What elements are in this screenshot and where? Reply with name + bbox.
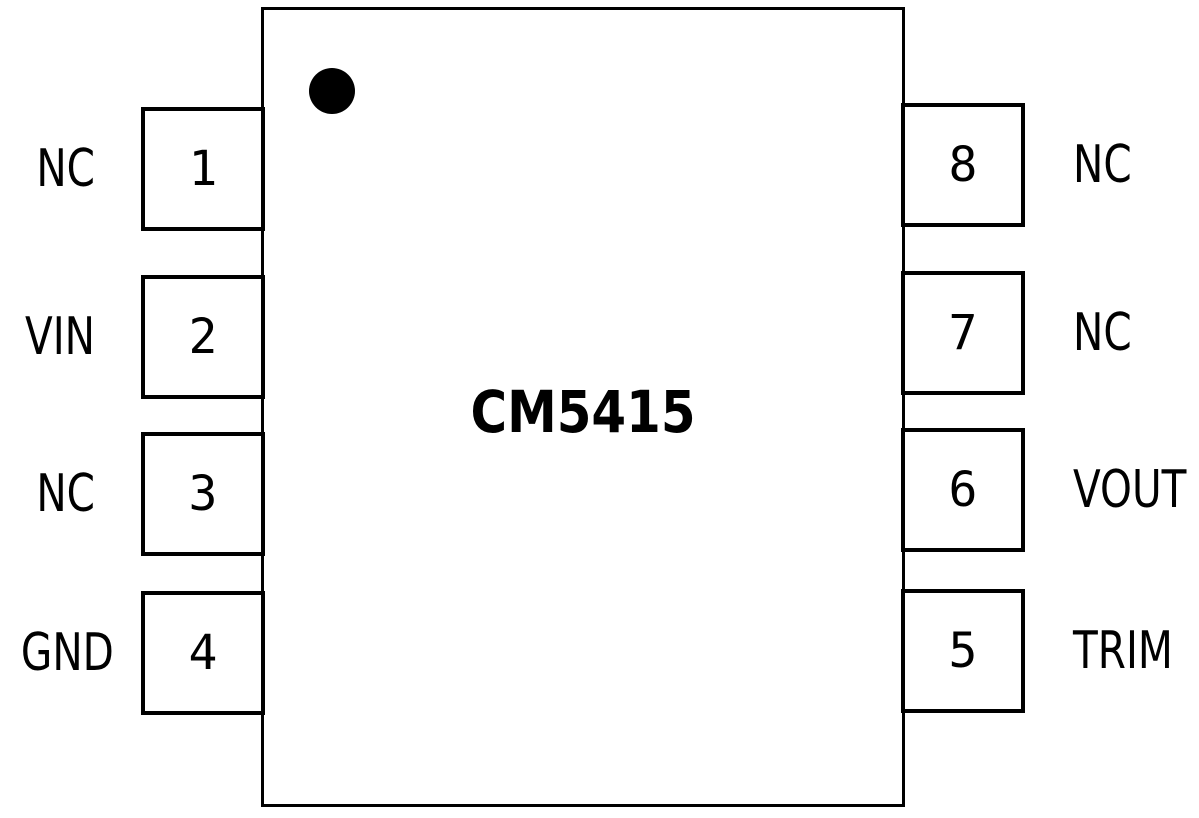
pin-box-5: 5 <box>901 589 1025 713</box>
pin-box-1: 1 <box>141 107 265 231</box>
pin-number-6: 6 <box>949 462 978 518</box>
chip-title: CM5415 <box>306 377 860 447</box>
pin-label-3: NC <box>21 464 95 524</box>
pin-label-6: VOUT <box>1073 460 1171 520</box>
pin-label-8: NC <box>1073 135 1171 195</box>
pin-number-3: 3 <box>189 466 218 522</box>
pin-number-8: 8 <box>949 137 978 193</box>
pin-box-2: 2 <box>141 275 265 399</box>
pin-box-7: 7 <box>901 271 1025 395</box>
pin-box-6: 6 <box>901 428 1025 552</box>
pin-number-1: 1 <box>189 141 218 197</box>
pinout-diagram: CM5415 1 2 3 4 NC VIN NC GND 8 7 6 5 NC … <box>0 0 1199 818</box>
pin-label-2: VIN <box>21 307 95 367</box>
pin-label-5: TRIM <box>1073 621 1171 681</box>
pin-box-3: 3 <box>141 432 265 556</box>
pin-box-8: 8 <box>901 103 1025 227</box>
pin-label-4: GND <box>21 623 95 683</box>
pin-box-4: 4 <box>141 591 265 715</box>
pin-number-5: 5 <box>949 623 978 679</box>
pin-label-7: NC <box>1073 303 1171 363</box>
pin-number-7: 7 <box>949 305 978 361</box>
pin-number-4: 4 <box>189 625 218 681</box>
pin-label-1: NC <box>21 139 95 199</box>
pin1-indicator-dot <box>309 68 355 114</box>
pin-number-2: 2 <box>189 309 218 365</box>
